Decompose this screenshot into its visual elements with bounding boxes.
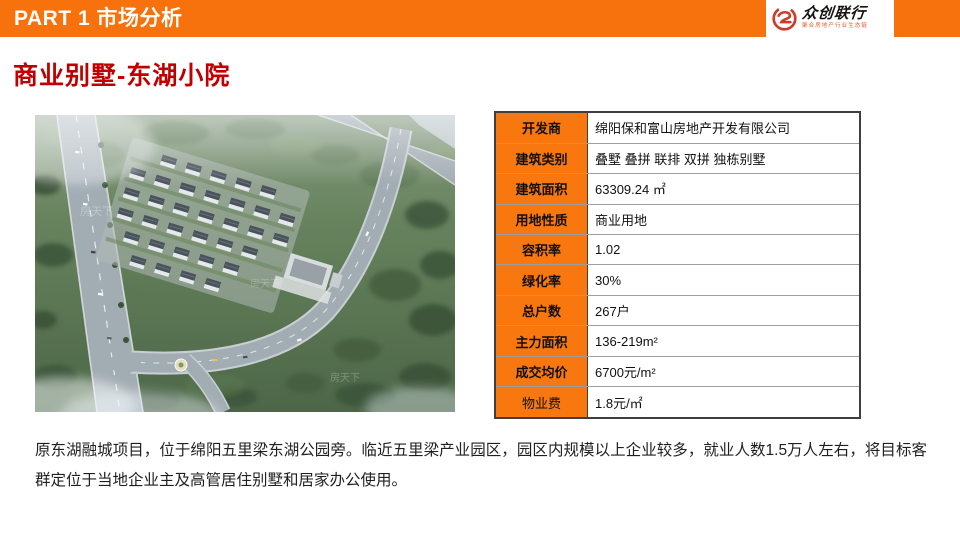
row-value: 267户 bbox=[588, 295, 861, 325]
watermark: 房天下 bbox=[250, 277, 280, 290]
row-value: 叠墅 叠拼 联排 双拼 独栋别墅 bbox=[588, 143, 861, 173]
page-title: 商业别墅-东湖小院 bbox=[13, 56, 230, 92]
row-label: 容积率 bbox=[495, 235, 588, 265]
row-label: 建筑面积 bbox=[495, 174, 588, 204]
row-value: 商业用地 bbox=[588, 204, 861, 234]
row-label: 绿化率 bbox=[495, 265, 588, 295]
brand-name: 众创联行 bbox=[801, 7, 869, 22]
table-row: 总户数 267户 bbox=[495, 295, 860, 325]
row-value: 63309.24 ㎡ bbox=[588, 174, 861, 204]
row-label: 成交均价 bbox=[495, 356, 588, 386]
table-row: 绿化率 30% bbox=[495, 265, 860, 295]
table-row: 容积率 1.02 bbox=[495, 235, 860, 265]
table-row: 用地性质 商业用地 bbox=[495, 204, 860, 234]
row-value: 30% bbox=[588, 265, 861, 295]
slide: PART 1 市场分析 众创联行 聚合房地产行业生态链 商业别墅-东湖小院 bbox=[0, 0, 960, 540]
row-value: 136-219m² bbox=[588, 326, 861, 356]
brand-tagline: 聚合房地产行业生态链 bbox=[802, 24, 868, 30]
row-label: 用地性质 bbox=[495, 204, 588, 234]
aerial-render-image: 房天下 房天下 房天下 bbox=[35, 115, 455, 412]
watermark: 房天下 bbox=[80, 205, 113, 218]
row-label: 主力面积 bbox=[495, 326, 588, 356]
table-row: 建筑面积 63309.24 ㎡ bbox=[495, 174, 860, 204]
description-text: 原东湖融城项目，位于绵阳五里梁东湖公园旁。临近五里梁产业园区，园区内规模以上企业… bbox=[35, 436, 927, 496]
info-table: 开发商 绵阳保和富山房地产开发有限公司 建筑类别 叠墅 叠拼 联排 双拼 独栋别… bbox=[494, 111, 861, 419]
watermark: 房天下 bbox=[330, 371, 360, 384]
swirl-emblem-icon bbox=[771, 5, 798, 32]
table-row: 主力面积 136-219m² bbox=[495, 326, 860, 356]
table-row: 建筑类别 叠墅 叠拼 联排 双拼 独栋别墅 bbox=[495, 143, 860, 173]
row-label: 总户数 bbox=[495, 295, 588, 325]
company-logo: 众创联行 聚合房地产行业生态链 bbox=[766, 0, 894, 37]
row-label: 物业费 bbox=[495, 387, 588, 418]
part-label: PART 1 市场分析 bbox=[14, 0, 182, 37]
row-value: 1.02 bbox=[588, 235, 861, 265]
brand-text: 众创联行 聚合房地产行业生态链 bbox=[802, 7, 868, 30]
row-label: 建筑类别 bbox=[495, 143, 588, 173]
row-value: 绵阳保和富山房地产开发有限公司 bbox=[588, 112, 861, 143]
row-label: 开发商 bbox=[495, 112, 588, 143]
row-value: 6700元/m² bbox=[588, 356, 861, 386]
table-row: 物业费 1.8元/㎡ bbox=[495, 387, 860, 418]
table-row: 成交均价 6700元/m² bbox=[495, 356, 860, 386]
table-row: 开发商 绵阳保和富山房地产开发有限公司 bbox=[495, 112, 860, 143]
row-value: 1.8元/㎡ bbox=[588, 387, 861, 418]
top-bar: PART 1 市场分析 众创联行 聚合房地产行业生态链 bbox=[0, 0, 960, 37]
